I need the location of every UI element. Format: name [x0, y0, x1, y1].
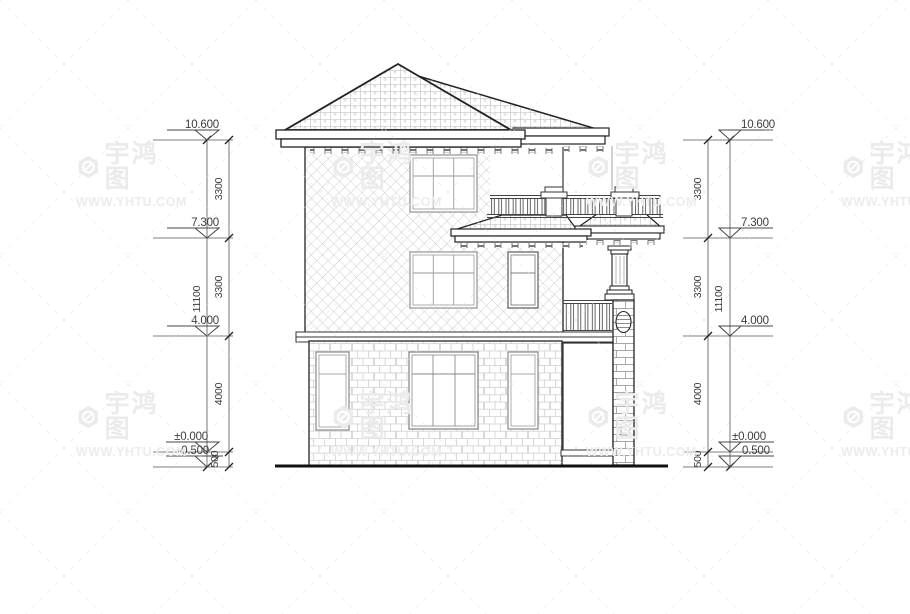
- level-marker-right-10600: 10.600: [719, 119, 775, 140]
- dim-right-overall: 11100: [713, 285, 725, 312]
- dim-right-500: 500: [692, 450, 704, 467]
- door-sill: [561, 450, 614, 456]
- balcony-balustrade: [563, 301, 612, 332]
- dimension-column-right: 3300 3300 4000 500 11100 10.600 7.300 4.…: [683, 119, 775, 471]
- svg-text:-0.500: -0.500: [178, 445, 209, 457]
- svg-text:4.000: 4.000: [191, 315, 219, 327]
- dim-right-3300a: 3300: [692, 177, 704, 200]
- dim-left-4000: 4000: [213, 382, 225, 405]
- second-floor-small-window: [508, 252, 538, 308]
- svg-text:7.300: 7.300: [741, 217, 769, 229]
- level-marker-left-7300: 7.300: [167, 217, 219, 238]
- level-marker-right-0500: 0.500: [719, 445, 774, 467]
- eave-bands: [276, 128, 609, 147]
- porch-dentils-right: [586, 240, 656, 245]
- eave-dentils: [310, 148, 558, 154]
- dim-left-3300a: 3300: [213, 177, 225, 200]
- first-floor-left-window: [316, 352, 349, 430]
- svg-text:7.300: 7.300: [191, 217, 219, 229]
- eave-dentils-right: [564, 146, 608, 152]
- porch-dentils: [459, 243, 583, 248]
- column-medallion: [616, 312, 631, 333]
- first-floor-center-window: [409, 352, 478, 429]
- second-floor-window: [410, 252, 477, 308]
- elevation-sheet: 3300 3300 4000 500 11100 10.600 7.300 4.…: [0, 0, 910, 614]
- dim-left-3300b: 3300: [213, 275, 225, 298]
- elevation-drawing: 3300 3300 4000 500 11100 10.600 7.300 4.…: [0, 0, 910, 614]
- main-roof: [285, 64, 600, 130]
- dim-right-3300b: 3300: [692, 275, 704, 298]
- third-floor-window: [410, 155, 477, 212]
- svg-text:10.600: 10.600: [741, 119, 775, 131]
- dim-right-4000: 4000: [692, 382, 704, 405]
- svg-text:10.600: 10.600: [185, 119, 219, 131]
- level-marker-left-4000: 4.000: [167, 315, 219, 336]
- svg-text:0.500: 0.500: [742, 445, 770, 457]
- level-marker-left-10600: 10.600: [167, 119, 219, 140]
- svg-text:4.000: 4.000: [741, 315, 769, 327]
- first-floor-right-window: [508, 352, 538, 429]
- level-marker-right-4000: 4.000: [719, 315, 773, 336]
- svg-text:±0.000: ±0.000: [174, 431, 208, 443]
- dim-left-overall: 11100: [191, 285, 203, 312]
- dimension-column-left: 3300 3300 4000 500 11100 10.600 7.300 4.…: [153, 119, 233, 471]
- svg-text:±0.000: ±0.000: [732, 431, 766, 443]
- porch-opening: [563, 343, 613, 452]
- level-marker-right-7300: 7.300: [719, 217, 773, 238]
- dim-left-500: 500: [209, 450, 221, 467]
